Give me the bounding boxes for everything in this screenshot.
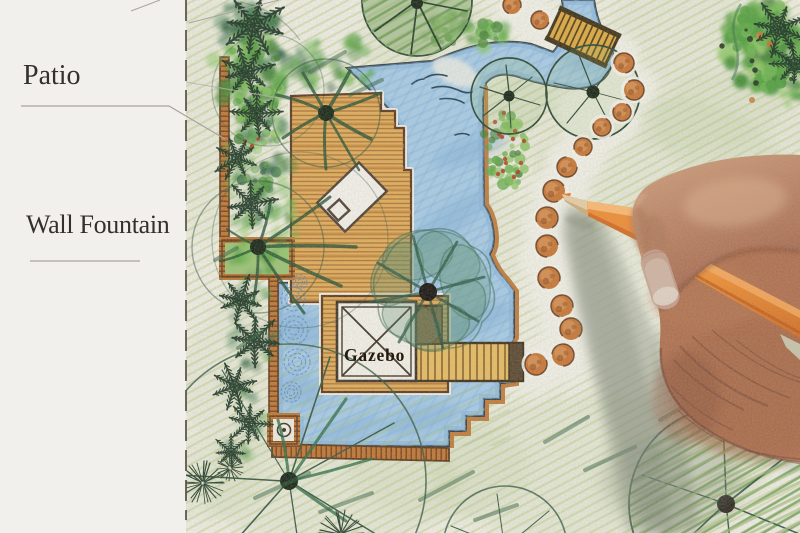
svg-text:Gazebo: Gazebo — [344, 345, 405, 365]
svg-text:Wall Fountain: Wall Fountain — [26, 210, 170, 239]
svg-text:Patio: Patio — [23, 60, 81, 91]
